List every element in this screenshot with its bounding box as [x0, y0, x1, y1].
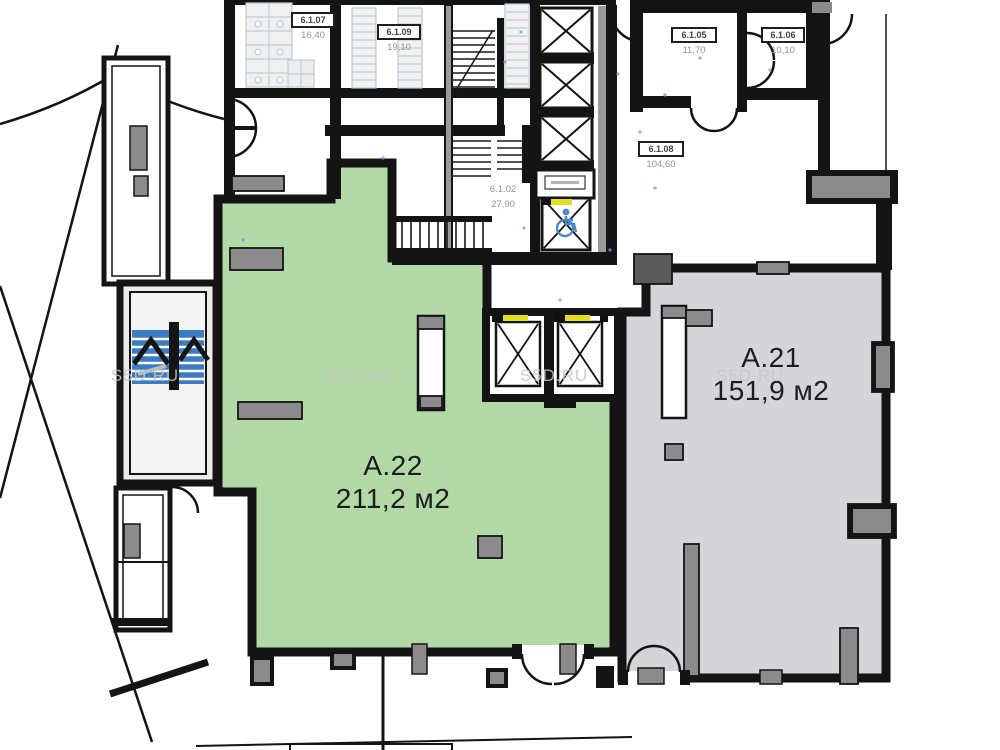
- balcony-upper: [104, 58, 168, 284]
- room-6107-area: 16,40: [291, 31, 335, 41]
- unit-a22-area: 211,2 м2: [313, 482, 473, 515]
- accent-yellow-mark: [500, 315, 528, 321]
- room-6109-area: 19,10: [377, 43, 421, 53]
- room-6109-label: 6.1.09: [377, 24, 421, 40]
- watermark: S5D.RU: [105, 366, 185, 386]
- unit-a22-label: А.22 211,2 м2: [313, 449, 473, 515]
- unit-a22-name: А.22: [313, 449, 473, 482]
- elevator-block-mid: [486, 312, 618, 408]
- door-arc-icon: [691, 108, 737, 131]
- watermark: S5D.RU: [318, 366, 398, 386]
- room-6108-area: 104,60: [638, 160, 684, 170]
- door-arc-icon: [172, 487, 198, 513]
- room-6106-area: 10,10: [761, 46, 805, 56]
- room-6102-label: 6.1.02: [478, 185, 528, 195]
- accent-yellow-mark: [562, 315, 590, 321]
- room-6106-label: 6.1.06: [761, 27, 805, 43]
- room-6107-label: 6.1.07: [291, 12, 335, 28]
- floor-plan: 6.1.07 16,40 6.1.09 19,10 6.1.05 11,70 6…: [0, 0, 1000, 750]
- room-6108-label: 6.1.08: [638, 141, 684, 157]
- service-room-tiny-text: [551, 181, 579, 184]
- room-6102-area: 27,90: [478, 200, 528, 210]
- room-6105-area: 11,70: [671, 46, 717, 56]
- room-6105-label: 6.1.05: [671, 27, 717, 43]
- elevator-bank-top: [536, 8, 594, 250]
- watermark: S5D.RU: [514, 366, 594, 386]
- duct-shaft: [662, 306, 686, 418]
- watermark: S5D.RU: [710, 366, 790, 386]
